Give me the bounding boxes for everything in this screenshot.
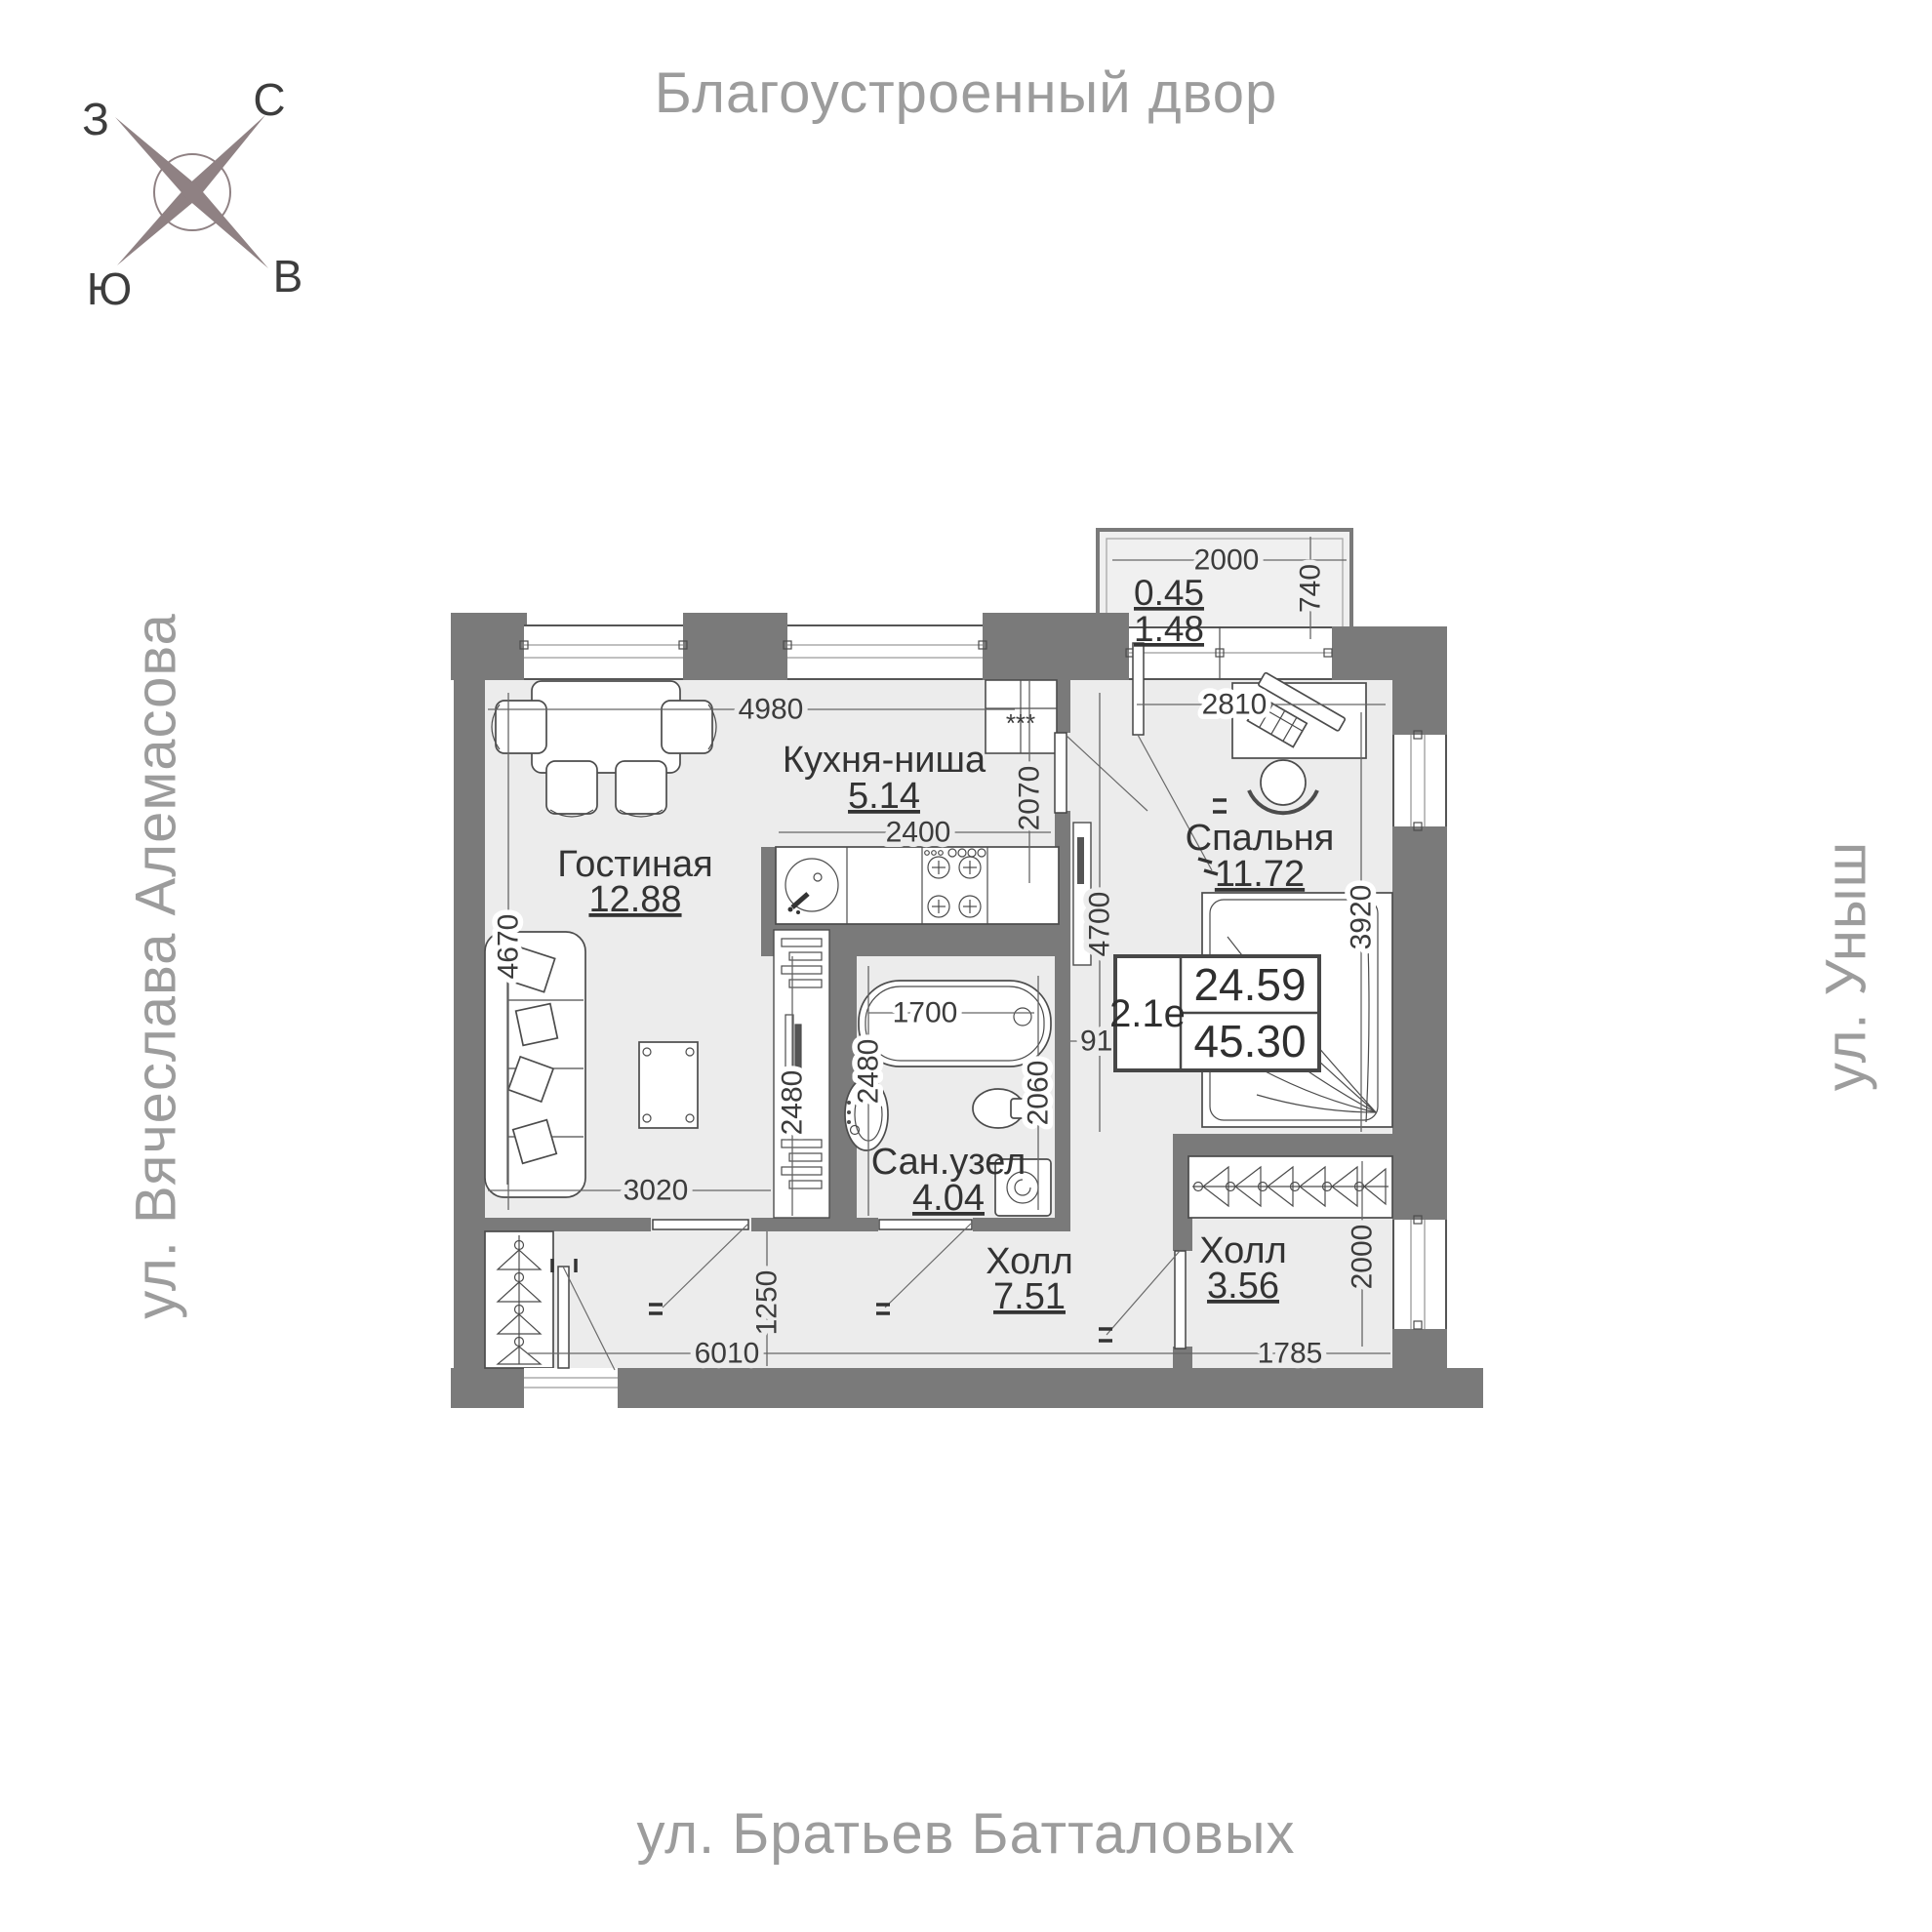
room-living-area: 12.88 <box>588 879 681 920</box>
dim-corridor-height: 4700 <box>1084 892 1116 957</box>
compass-rose: С З Ю В <box>59 49 342 332</box>
balcony-area-full: 1.48 <box>1134 609 1204 649</box>
kitchen-counter <box>776 847 1059 924</box>
dim-hall-height: 1250 <box>751 1270 784 1336</box>
dim-kitchen-width: 2400 <box>886 817 951 849</box>
unit-total-area: 45.30 <box>1193 1016 1306 1067</box>
dim-bedroom-width: 2810 <box>1202 689 1268 721</box>
unit-info-box: 2.1е 24.59 45.30 <box>1109 956 1319 1070</box>
unit-living-area: 24.59 <box>1193 959 1306 1010</box>
dim-bedroom-height: 3920 <box>1346 885 1378 950</box>
wall-segment <box>1173 1134 1392 1156</box>
room-hall2-area: 3.56 <box>1207 1266 1279 1307</box>
street-right-label: ул. Уныш <box>1814 841 1879 1091</box>
wall-segment <box>683 613 787 680</box>
window <box>1392 731 1447 830</box>
window <box>1392 1216 1447 1329</box>
room-hall-area: 7.51 <box>993 1276 1066 1317</box>
dim-hall-width: 6010 <box>695 1338 760 1370</box>
floor-plan: *** <box>449 527 1493 1425</box>
coffee-table <box>639 1042 698 1128</box>
wall-segment <box>485 1218 651 1231</box>
dim-living-height: 4670 <box>493 914 525 980</box>
wardrobe-entry <box>485 1231 553 1368</box>
wall-segment <box>454 680 485 1368</box>
dim-living-bottom: 3020 <box>624 1175 689 1207</box>
room-bath-label: Сан.узел <box>871 1142 1026 1183</box>
room-bath-area: 4.04 <box>912 1178 985 1219</box>
dim-balcony-depth: 740 <box>1295 564 1327 613</box>
street-left-label: ул. Вячеслава Алемасова <box>124 613 189 1319</box>
dim-bath-width: 1700 <box>893 997 958 1029</box>
wall-segment <box>973 1218 1070 1231</box>
wall-segment <box>1392 1329 1447 1368</box>
compass-east: В <box>273 251 303 302</box>
balcony-area-reduced: 0.45 <box>1134 573 1204 613</box>
dim-bath-height: 2480 <box>853 1039 885 1105</box>
unit-code: 2.1е <box>1109 992 1186 1035</box>
dim-hall2-height: 2000 <box>1347 1225 1379 1290</box>
wall-segment <box>1332 626 1447 680</box>
wall-segment <box>1392 1134 1447 1220</box>
dim-kitchen-height: 2070 <box>1014 766 1046 831</box>
compass-north: С <box>253 74 285 125</box>
wall-segment <box>451 613 527 680</box>
dim-bath-right: 2060 <box>1023 1061 1055 1126</box>
wall-segment <box>1173 1347 1192 1368</box>
room-kitchen-area: 5.14 <box>848 776 920 817</box>
wall-segment <box>618 1368 1483 1408</box>
dim-kitchen-depth: 2480 <box>777 1070 809 1136</box>
compass-south: Ю <box>87 263 132 314</box>
room-bedroom-area: 11.72 <box>1215 854 1305 895</box>
vent-shaft: *** <box>986 680 1057 753</box>
room-bedroom-label: Спальня <box>1186 818 1335 859</box>
wall-segment <box>761 847 776 924</box>
wall-segment <box>1392 680 1447 735</box>
compass-west: З <box>82 94 109 144</box>
dim-living-width: 4980 <box>739 694 804 726</box>
wall-segment <box>1392 826 1447 1134</box>
street-bottom-label: ул. Братьев Батталовых <box>0 1801 1932 1867</box>
room-kitchen-label: Кухня-ниша <box>783 740 986 781</box>
vent-mark: *** <box>1006 708 1035 738</box>
wall-segment <box>751 1218 878 1231</box>
wall-segment <box>983 613 1129 680</box>
wall-segment <box>451 1368 524 1408</box>
dim-hall2-width: 1785 <box>1258 1338 1323 1370</box>
window <box>784 624 986 680</box>
window <box>520 624 687 680</box>
dim-balcony-width: 2000 <box>1194 544 1260 577</box>
